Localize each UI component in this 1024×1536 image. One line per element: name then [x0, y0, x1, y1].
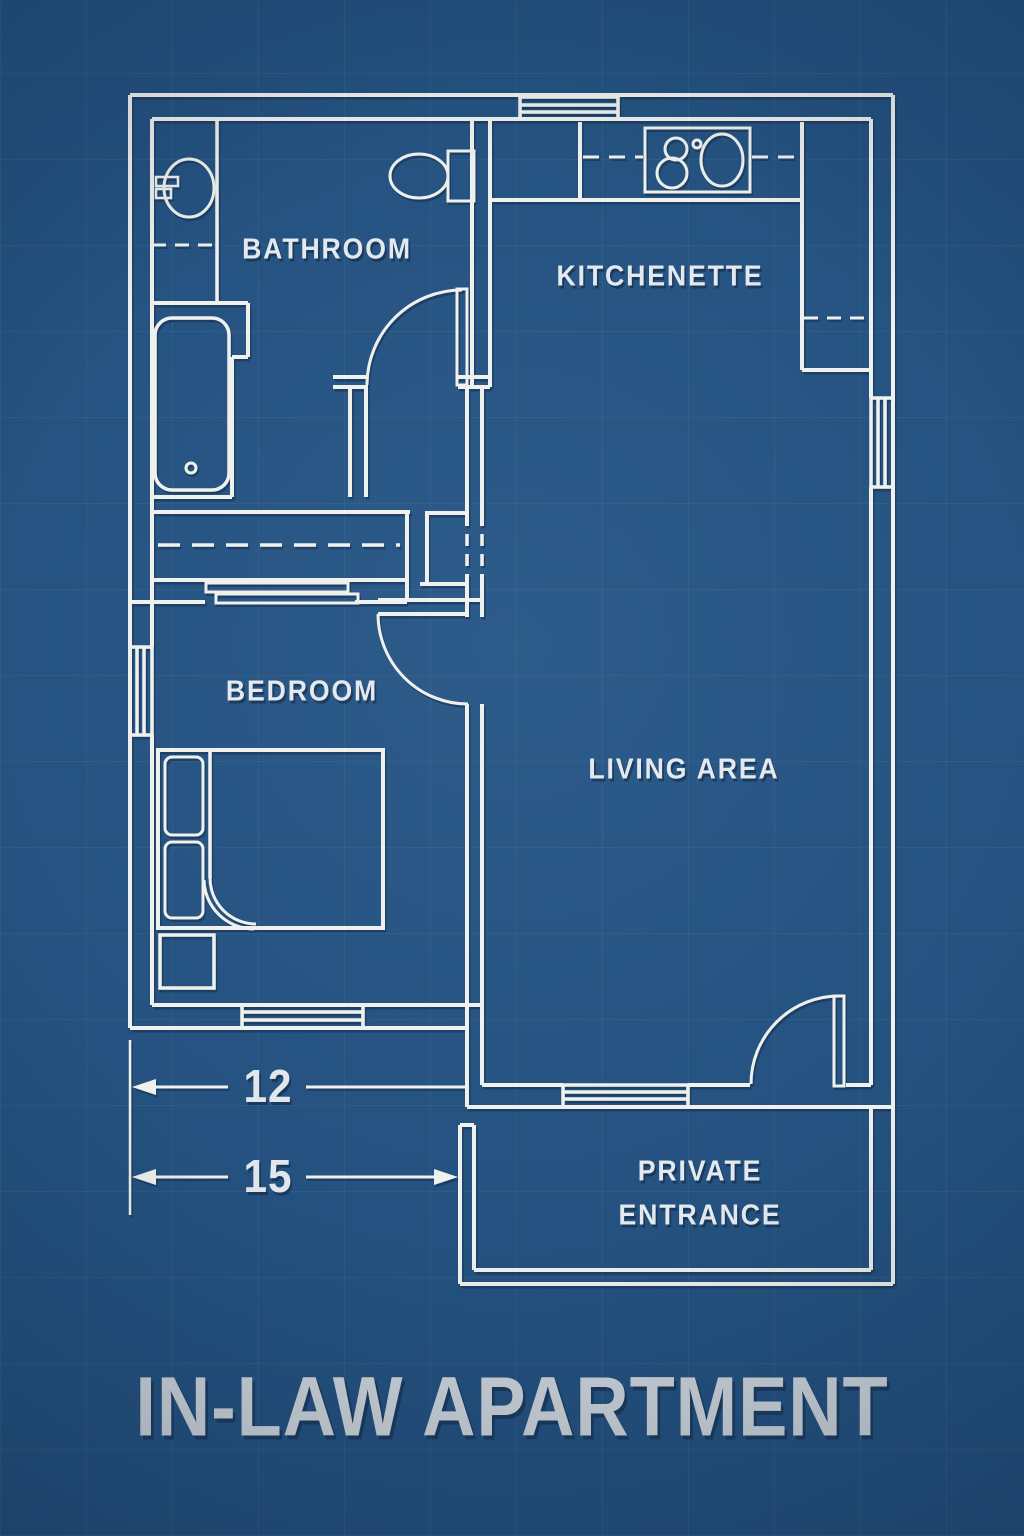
sink-cooktop-icon: [645, 128, 750, 192]
page-title: IN-LAW APARTMENT: [135, 1359, 888, 1456]
arrow-right-15: [434, 1169, 458, 1185]
room-label-private-entrance: PRIVATE ENTRANCE: [619, 1151, 782, 1238]
nightstand-icon: [160, 935, 214, 988]
dimension-value-15: 15: [244, 1149, 293, 1203]
room-label-living-area: LIVING AREA: [588, 754, 779, 787]
arrow-left-15: [132, 1169, 156, 1185]
dimension-lines: [130, 1040, 465, 1215]
window-icon-right: [871, 398, 893, 487]
bed-icon: [158, 750, 383, 929]
blueprint-page: { "title": "IN-LAW APARTMENT", "labels":…: [0, 0, 1024, 1536]
entry-door-icon: [751, 996, 844, 1086]
window-icon-bedroom-bottom: [242, 1005, 363, 1028]
bathtub-icon: [155, 318, 229, 490]
sink-icon: [156, 159, 214, 217]
window-icon-left: [130, 647, 152, 735]
room-label-kitchenette: KITCHENETTE: [557, 261, 764, 294]
sliding-doors-icon: [206, 583, 358, 603]
interior-walls: [130, 119, 490, 1107]
room-label-bathroom: BATHROOM: [242, 234, 412, 267]
room-label-bedroom: BEDROOM: [226, 676, 378, 709]
bedroom-door-icon: [378, 614, 468, 704]
arrow-left-12: [132, 1079, 156, 1095]
toilet-icon: [390, 151, 474, 201]
bathroom-door-icon: [367, 289, 467, 385]
dimension-value-12: 12: [244, 1059, 293, 1113]
window-icon-living-bottom: [563, 1085, 688, 1107]
floor-plan-drawing: [0, 0, 1024, 1536]
window-icon-top: [520, 97, 618, 119]
vanity-counter: [152, 119, 217, 303]
